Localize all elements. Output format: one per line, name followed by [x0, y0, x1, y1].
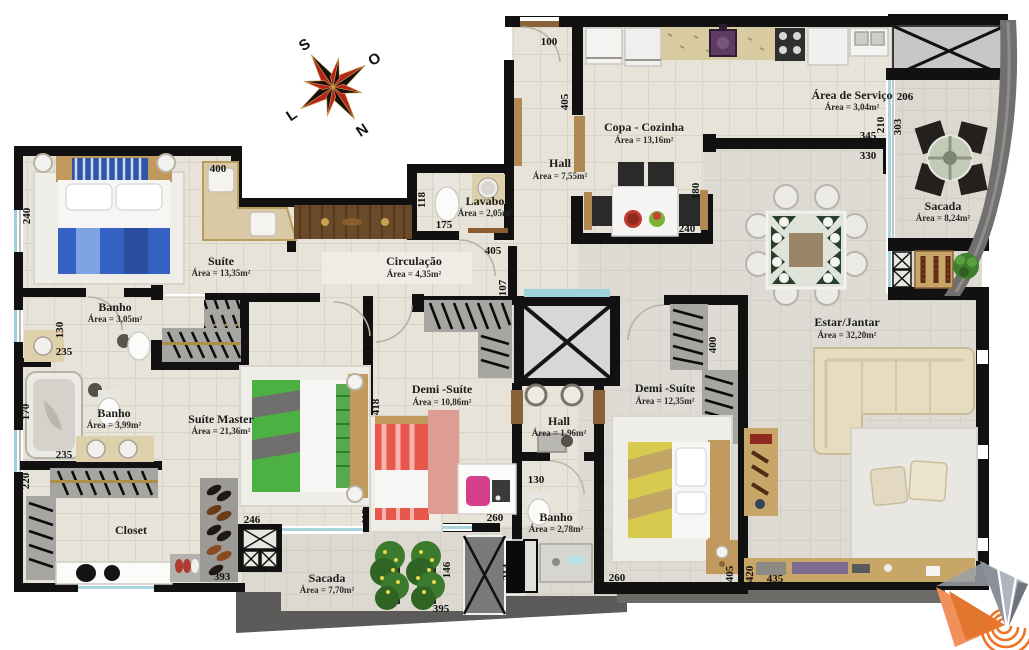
svg-text:235: 235 — [56, 449, 73, 461]
svg-text:Sacada: Sacada — [925, 199, 962, 213]
svg-text:Circulação: Circulação — [386, 254, 442, 268]
svg-text:107: 107 — [497, 279, 509, 296]
svg-text:Área = 21,36m²: Área = 21,36m² — [192, 426, 251, 436]
svg-text:Lavabo: Lavabo — [466, 194, 505, 208]
svg-text:Área = 7,70m²: Área = 7,70m² — [300, 585, 355, 595]
svg-text:260: 260 — [609, 572, 626, 584]
svg-text:Área = 7,55m²: Área = 7,55m² — [533, 171, 588, 181]
svg-text:118: 118 — [416, 192, 428, 208]
svg-text:180: 180 — [690, 182, 702, 199]
svg-text:Área = 13,16m²: Área = 13,16m² — [615, 135, 674, 145]
svg-text:Demi -Suíte: Demi -Suíte — [412, 382, 473, 396]
svg-text:130: 130 — [54, 321, 66, 338]
svg-text:Área de Serviço: Área de Serviço — [811, 88, 892, 102]
svg-text:Área = 2,05m²: Área = 2,05m² — [458, 208, 513, 218]
svg-text:Estar/Jantar: Estar/Jantar — [814, 315, 880, 329]
svg-text:405: 405 — [724, 565, 736, 582]
svg-text:235: 235 — [56, 346, 73, 358]
svg-text:206: 206 — [897, 91, 914, 103]
svg-text:400: 400 — [210, 163, 227, 175]
svg-text:170: 170 — [20, 403, 32, 420]
svg-text:Área = 10,86m²: Área = 10,86m² — [413, 397, 472, 407]
svg-text:Área = 32,20m²: Área = 32,20m² — [818, 330, 877, 340]
svg-text:100: 100 — [541, 36, 558, 48]
svg-text:330: 330 — [860, 150, 877, 162]
svg-text:420: 420 — [744, 565, 756, 582]
svg-text:Banho: Banho — [98, 300, 131, 314]
svg-text:130: 130 — [528, 474, 545, 486]
svg-text:Área = 3,99m²: Área = 3,99m² — [87, 420, 142, 430]
svg-text:405: 405 — [559, 93, 571, 110]
svg-text:240: 240 — [21, 207, 33, 224]
svg-text:175: 175 — [436, 219, 453, 231]
svg-text:Banho: Banho — [539, 510, 572, 524]
svg-text:435: 435 — [767, 573, 784, 585]
svg-text:260: 260 — [487, 512, 504, 524]
svg-text:418: 418 — [370, 398, 382, 415]
svg-text:405: 405 — [485, 245, 502, 257]
svg-text:Banho: Banho — [97, 406, 130, 420]
svg-text:395: 395 — [433, 603, 450, 615]
svg-text:Sacada: Sacada — [309, 571, 346, 585]
svg-text:220: 220 — [20, 472, 32, 489]
svg-text:Suíte Master: Suíte Master — [188, 412, 254, 426]
svg-text:214: 214 — [501, 563, 513, 580]
svg-text:Área = 2,78m²: Área = 2,78m² — [529, 524, 584, 534]
svg-text:246: 246 — [244, 514, 261, 526]
svg-text:Hall: Hall — [549, 156, 572, 170]
svg-text:Copa - Cozinha: Copa - Cozinha — [604, 120, 684, 134]
svg-text:Hall: Hall — [548, 414, 571, 428]
svg-text:Área = 12,35m²: Área = 12,35m² — [636, 396, 695, 406]
svg-text:Demi -Suíte: Demi -Suíte — [635, 381, 696, 395]
svg-text:Área = 13,35m²: Área = 13,35m² — [192, 268, 251, 278]
svg-text:240: 240 — [679, 223, 696, 235]
svg-text:303: 303 — [892, 118, 904, 135]
svg-text:400: 400 — [707, 336, 719, 353]
svg-text:393: 393 — [214, 571, 231, 583]
svg-text:Área = 8,24m²: Área = 8,24m² — [916, 213, 971, 223]
svg-text:Área = 3,05m²: Área = 3,05m² — [88, 314, 143, 324]
svg-text:Área = 1,96m²: Área = 1,96m² — [532, 428, 587, 438]
svg-text:146: 146 — [441, 561, 453, 578]
svg-text:210: 210 — [875, 116, 887, 133]
svg-text:Closet: Closet — [115, 523, 147, 537]
svg-text:Área = 3,04m²: Área = 3,04m² — [825, 102, 880, 112]
svg-text:Área = 4,35m²: Área = 4,35m² — [387, 269, 442, 279]
svg-text:Suíte: Suíte — [208, 254, 235, 268]
svg-text:418: 418 — [360, 508, 372, 525]
